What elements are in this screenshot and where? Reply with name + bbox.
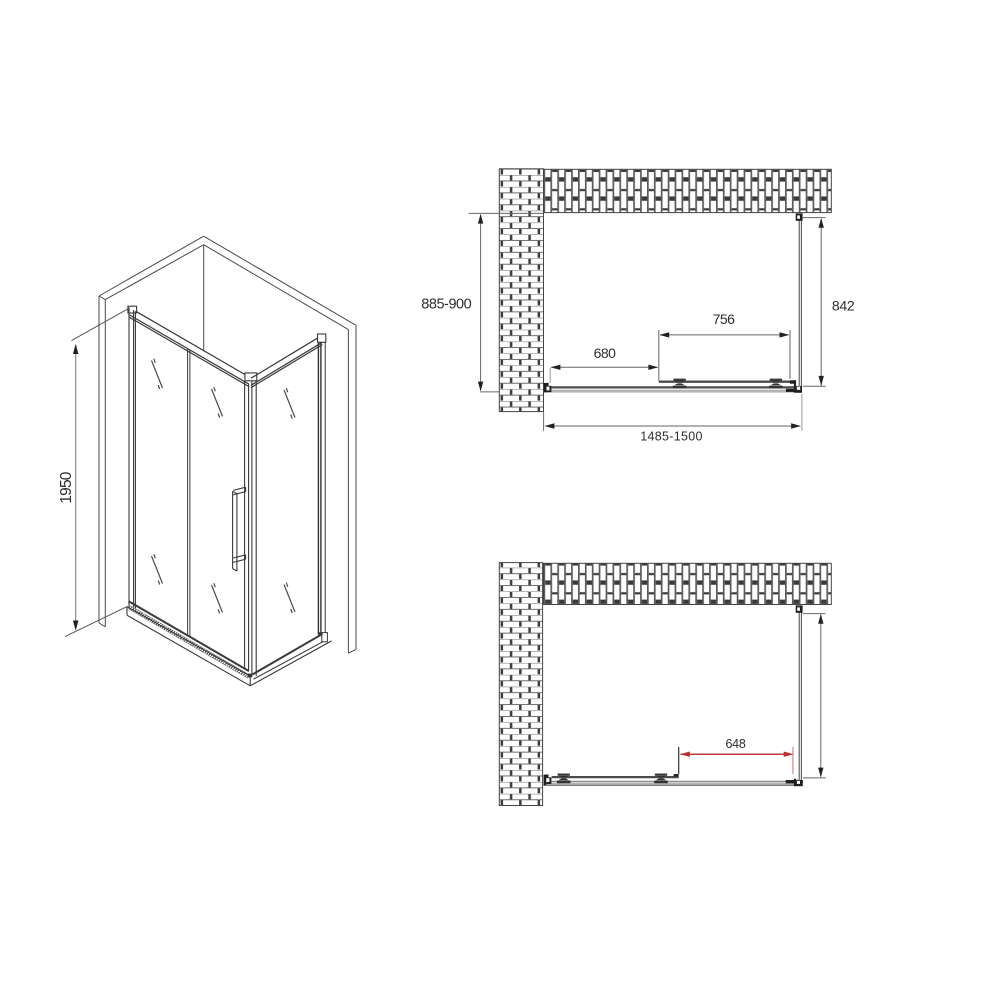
- svg-text:648: 648: [726, 737, 746, 751]
- svg-text:680: 680: [594, 345, 617, 361]
- svg-text:885-900: 885-900: [421, 297, 471, 313]
- svg-text:756: 756: [713, 311, 736, 327]
- svg-text:1950: 1950: [58, 471, 75, 503]
- svg-text:1485-1500: 1485-1500: [640, 430, 702, 444]
- svg-text:842: 842: [832, 298, 855, 314]
